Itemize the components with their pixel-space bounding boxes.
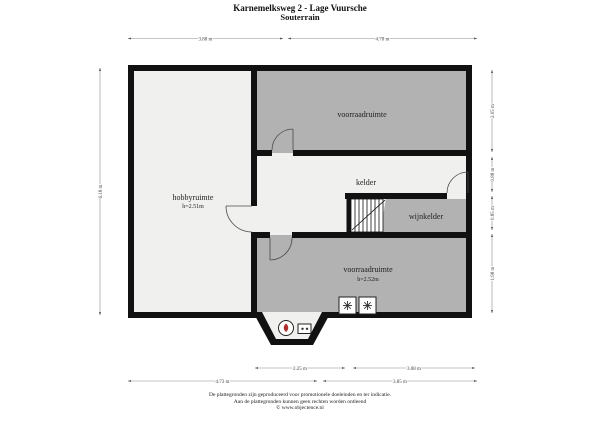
dimension-bottom-outer-left: 4.73 m [128,380,317,385]
dimension-label: 4.78 m [376,38,390,43]
dimension-left-side: 6.18 m [99,68,104,315]
dimension-label: 2.25 m [293,367,307,372]
staircase [351,199,385,232]
room-height-hobbyruimte: h=2.51m [182,204,204,210]
footer-copyright: © www.objectence.nl [0,405,600,412]
dimension-right-top: 2.05 m [491,70,496,152]
room-label-voorraadruimte-top: voorraadruimte [337,110,387,119]
room-hobbyruimte [131,68,254,315]
dimension-right-upper-mid: 0.88 m [491,157,496,192]
floorplan-page: Karnemelksweg 2 - Lage Vuursche Souterra… [0,0,600,424]
dimension-label: 0.85 m [491,206,496,220]
dimension-label: 0.88 m [491,167,496,181]
room-label-wijnkelder: wijnkelder [409,212,444,221]
dimension-bottom-outer-right: 3.85 m [323,380,477,385]
dimension-bottom-inner-right: 3.08 m [353,367,475,372]
room-label-voorraadruimte-bottom: voorraadruimte [343,265,393,274]
washing-machine-icon [339,297,356,314]
floorplan-svg: voorraadruimte hobbyruimte h=2.51m kelde… [0,0,600,424]
meter-icon [298,324,311,334]
boiler-icon [279,321,294,336]
room-label-kelder: kelder [356,178,376,187]
dimension-label: 3.88 m [199,38,213,43]
footer-block: De plattegronden zijn geproduceerd voor … [0,392,600,412]
dimension-bottom-inner-left: 2.25 m [255,367,345,372]
dimension-right-lower-mid: 0.85 m [491,196,496,230]
dimension-label: 6.18 m [99,184,104,198]
dimension-label: 4.73 m [216,380,230,385]
dimension-label: 3.08 m [407,367,421,372]
washing-machine-icon [359,297,376,314]
dimension-top-right: 4.78 m [288,38,477,43]
dimension-label: 3.85 m [393,380,407,385]
dimension-label: 2.05 m [491,104,496,118]
room-label-hobbyruimte: hobbyruimte [173,193,214,202]
dimension-right-bottom: 1.98 m [491,234,496,313]
dimension-top-left: 3.88 m [128,38,283,43]
dimension-label: 1.98 m [491,266,496,280]
room-height-voorraadruimte-bottom: h=2.52m [357,277,379,283]
